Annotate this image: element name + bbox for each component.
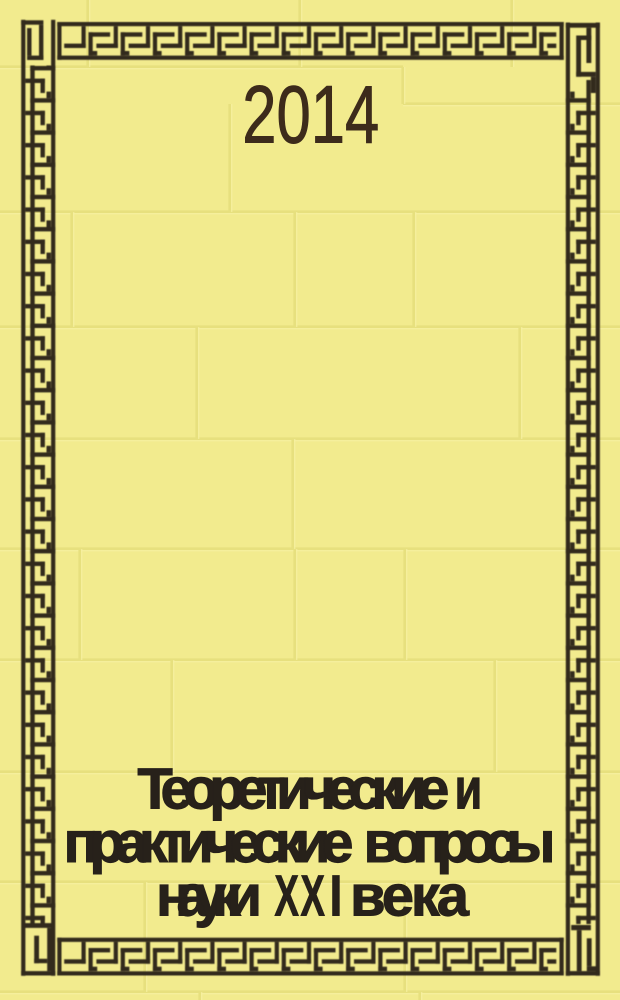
svg-text:X: X bbox=[275, 864, 300, 929]
svg-text:X: X bbox=[301, 864, 326, 929]
svg-text:науки: науки bbox=[156, 864, 262, 929]
svg-text:века: века bbox=[350, 864, 470, 929]
svg-text:I: I bbox=[330, 864, 343, 929]
svg-text:2014: 2014 bbox=[242, 70, 379, 161]
